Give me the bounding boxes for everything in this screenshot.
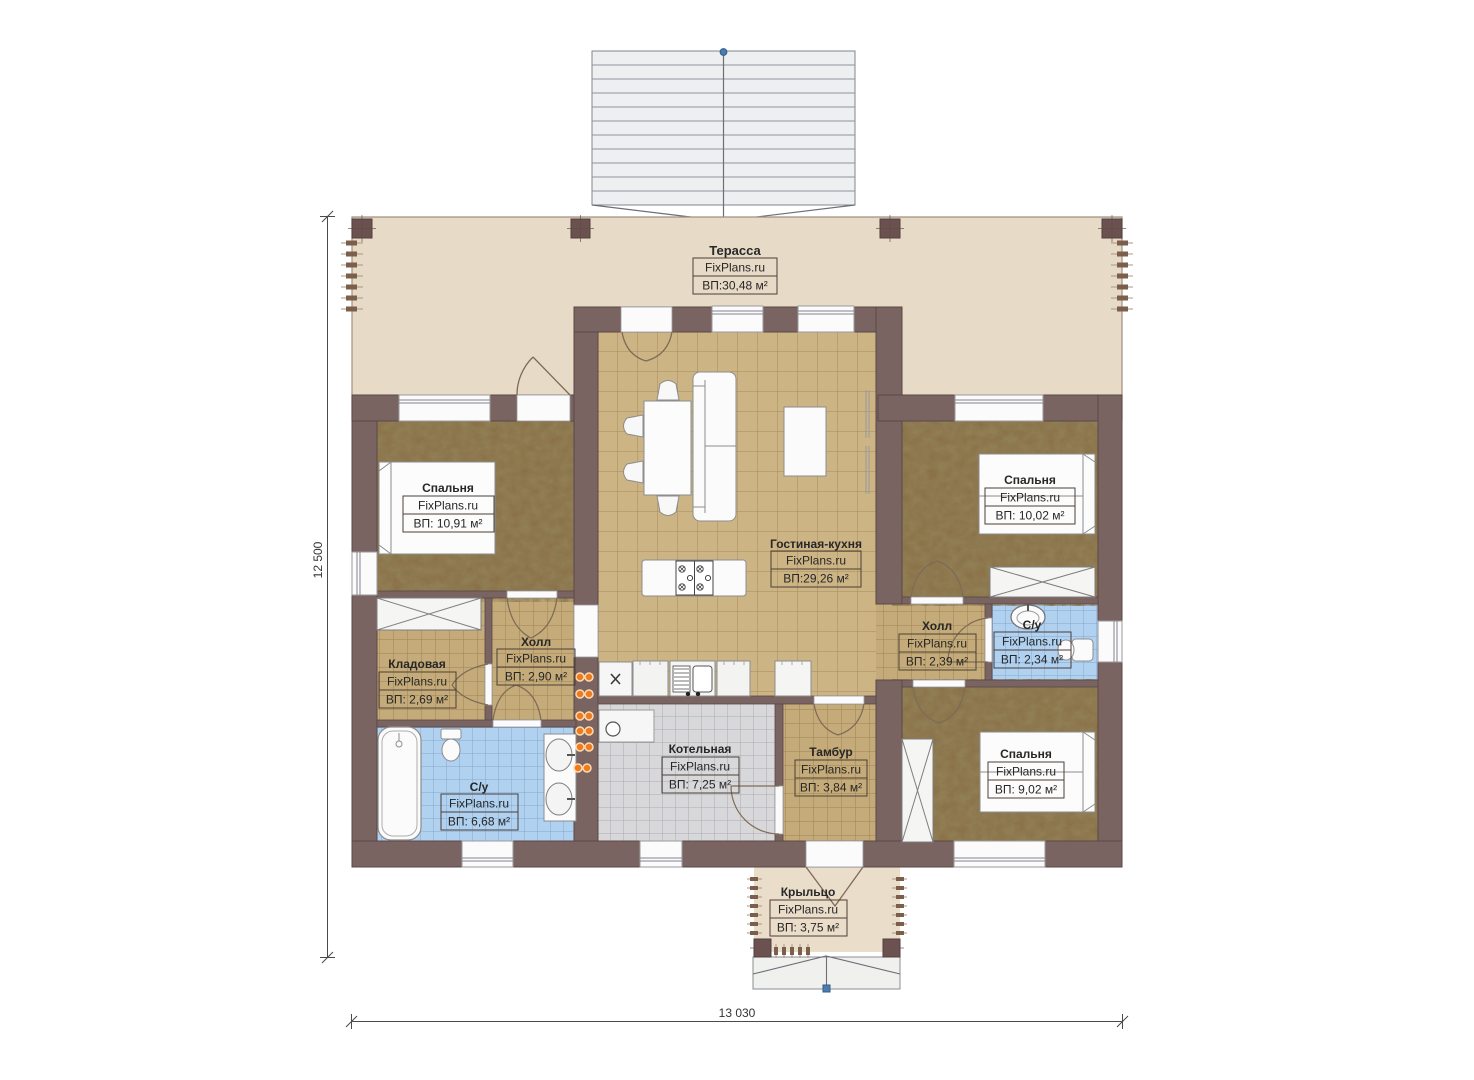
svg-text:12 500: 12 500 <box>311 541 325 578</box>
svg-text:FixPlans.ru: FixPlans.ru <box>387 675 447 689</box>
svg-text:Терасса: Терасса <box>709 243 761 258</box>
svg-text:FixPlans.ru: FixPlans.ru <box>418 499 478 513</box>
svg-text:FixPlans.ru: FixPlans.ru <box>705 261 765 275</box>
svg-text:FixPlans.ru: FixPlans.ru <box>1002 635 1062 649</box>
svg-text:Гостиная-кухня: Гостиная-кухня <box>770 537 862 551</box>
svg-text:Кладовая: Кладовая <box>388 657 445 671</box>
svg-text:FixPlans.ru: FixPlans.ru <box>996 765 1056 779</box>
svg-text:ВП: 3,75 м²: ВП: 3,75 м² <box>777 921 839 935</box>
svg-text:FixPlans.ru: FixPlans.ru <box>778 903 838 917</box>
svg-text:ВП:30,48 м²: ВП:30,48 м² <box>702 279 768 293</box>
svg-text:ВП: 2,90 м²: ВП: 2,90 м² <box>505 670 567 684</box>
svg-text:FixPlans.ru: FixPlans.ru <box>449 797 509 811</box>
svg-text:Холл: Холл <box>521 635 551 649</box>
svg-text:ВП: 6,68 м²: ВП: 6,68 м² <box>448 815 510 829</box>
svg-text:ВП: 2,39 м²: ВП: 2,39 м² <box>906 655 968 669</box>
svg-text:Крыльцо: Крыльцо <box>781 885 836 899</box>
svg-text:13 030: 13 030 <box>719 1006 756 1020</box>
svg-text:ВП: 2,69 м²: ВП: 2,69 м² <box>386 693 448 707</box>
svg-text:Спальня: Спальня <box>1000 747 1052 761</box>
svg-text:Холл: Холл <box>922 619 952 633</box>
svg-text:Котельная: Котельная <box>669 742 732 756</box>
svg-text:FixPlans.ru: FixPlans.ru <box>786 554 846 568</box>
svg-text:С/у: С/у <box>470 780 489 794</box>
svg-text:Спальня: Спальня <box>1004 473 1056 487</box>
svg-text:Тамбур: Тамбур <box>809 745 853 759</box>
svg-text:Спальня: Спальня <box>422 481 474 495</box>
svg-text:FixPlans.ru: FixPlans.ru <box>506 652 566 666</box>
svg-text:FixPlans.ru: FixPlans.ru <box>670 760 730 774</box>
svg-text:ВП: 7,25 м²: ВП: 7,25 м² <box>669 778 731 792</box>
svg-text:С/у: С/у <box>1023 618 1042 632</box>
svg-text:ВП: 2,34 м²: ВП: 2,34 м² <box>1001 653 1063 667</box>
svg-text:FixPlans.ru: FixPlans.ru <box>1000 491 1060 505</box>
svg-text:ВП: 9,02 м²: ВП: 9,02 м² <box>995 783 1057 797</box>
svg-text:FixPlans.ru: FixPlans.ru <box>801 763 861 777</box>
svg-text:ВП: 10,02 м²: ВП: 10,02 м² <box>996 509 1065 523</box>
svg-text:ВП: 3,84 м²: ВП: 3,84 м² <box>800 781 862 795</box>
svg-text:ВП:29,26 м²: ВП:29,26 м² <box>783 572 849 586</box>
svg-text:ВП: 10,91 м²: ВП: 10,91 м² <box>414 517 483 531</box>
svg-text:FixPlans.ru: FixPlans.ru <box>907 637 967 651</box>
